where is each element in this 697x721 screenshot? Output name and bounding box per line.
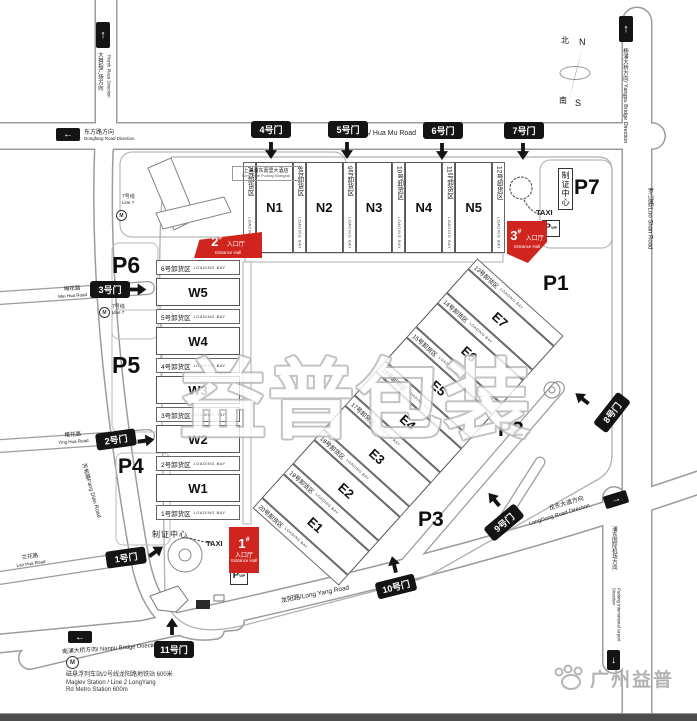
loading-bay-text: LOADING BAY (397, 217, 401, 249)
loading-bay-text: LOADING BAY (194, 462, 226, 466)
pudong-airport-direction-cn: 浦东国际机场方向 (610, 526, 617, 586)
mei-hua-road-label: 梅花路 Mei Hua Road (58, 285, 88, 299)
hall-w3: W3 (156, 376, 240, 404)
loading-bay-12: 12号卸货区 LOADING BAY (492, 162, 505, 253)
bay-5-label: 5号卸货区 (161, 312, 191, 322)
loading-bay-11: 11号卸货区 LOADING BAY (442, 162, 455, 253)
west-halls-block: 6号卸货区 LOADING BAY W5 5号卸货区 LOADING BAY W… (156, 260, 240, 523)
hall-n4: N4 (405, 162, 442, 253)
station-info-en2: Rd Metro Station 600m (66, 687, 173, 695)
hall-w1-label: W1 (188, 481, 208, 496)
hall-n3-label: N3 (366, 200, 383, 215)
station-info-cn: 磁悬浮列车站/2号线龙阳路地铁站 600米 (66, 672, 173, 680)
hall-w2-label: W2 (188, 432, 208, 447)
loading-bay-text: LOADING BAY (194, 315, 226, 319)
metro-icon-top: M (116, 210, 127, 221)
parking-p2: P2 (498, 418, 524, 442)
bay-3-label: 3号卸货区 (161, 410, 191, 420)
entrance-1-hash: # (246, 537, 250, 544)
gate-4: 4号门 (251, 121, 291, 138)
hall-w4-label: W4 (188, 334, 208, 349)
compass-north-en: N (579, 37, 586, 47)
loading-bay-text: LOADING BAY (447, 217, 451, 249)
hall-e7-label: E7 (489, 309, 511, 331)
hall-n5: N5 (455, 162, 492, 253)
dongfang-direction-en: Dongfang Road Direction (84, 136, 135, 141)
bay-6-label: 6号卸货区 (161, 263, 191, 273)
loading-bay-text: LOADING BAY (297, 217, 301, 249)
taxi-label-north: TAXI (536, 208, 553, 217)
compass-north-cn: 北 (561, 35, 569, 46)
yangpu-arrow-up: ↑ (619, 16, 633, 42)
entrance-2-en: Entrance Hall (215, 251, 241, 256)
pudong-airport-direction-en: Pudong International Airport Direction (611, 588, 622, 648)
vip-letter: VIP (239, 574, 245, 579)
loading-bay-1: 1号卸货区 LOADING BAY (156, 505, 240, 520)
line7-en-2: Line 7 (112, 310, 125, 316)
hall-n3: N3 (356, 162, 393, 253)
entrance-hall-1: 1# 入口厅 Entrance Hall (229, 527, 259, 573)
hall-e1-label: E1 (305, 514, 327, 536)
parking-p6: P6 (112, 252, 140, 279)
parking-p5: P5 (112, 352, 140, 379)
line7-en: Line 7 (122, 200, 135, 206)
bay-4-label: 4号卸货区 (161, 361, 191, 371)
kerry-hotel-en: Kerry Hotel Pudong Shanghai (235, 174, 297, 178)
loading-bay-4: 4号卸货区 LOADING BAY (156, 358, 240, 373)
hall-n1-label: N1 (266, 200, 283, 215)
parking-p3: P3 (418, 508, 444, 532)
bottom-bar (0, 713, 697, 721)
thumb-plaza-arrow-up: ↑ (96, 22, 110, 48)
loading-bay-text: LOADING BAY (194, 364, 226, 368)
yangpu-bridge-direction: 杨浦大桥方向/ Yangpu Bridge Direction (621, 48, 628, 183)
hall-w5-label: W5 (188, 285, 208, 300)
parking-p1: P1 (543, 272, 569, 296)
hall-e3-label: E3 (366, 445, 388, 467)
station-info-en1: Maglev Station / Line 2 LongYang (66, 680, 173, 688)
dongfang-direction-cn: 东方路方向 (84, 127, 114, 136)
bay-2-label: 2号卸货区 (161, 459, 191, 469)
loading-bay-6: 6号卸货区 LOADING BAY (156, 260, 240, 275)
hall-w5: W5 (156, 278, 240, 306)
thumb-plaza-direction-en: Thumb Plaza Direction (106, 54, 111, 134)
bay-9-label: 9号卸货区 (345, 166, 352, 196)
entrance-2-cn: 入口厅 (227, 242, 245, 248)
entrance-3-cn: 入口厅 (526, 236, 544, 242)
loading-bay-9: 9号卸货区 LOADING BAY (343, 162, 356, 253)
cert-center-p7: 制证中心 (558, 168, 573, 210)
taxi-label-south: TAXI (206, 539, 223, 548)
parking-p7: P7 (574, 176, 600, 200)
road-network (0, 0, 697, 721)
gate-5: 5号门 (328, 121, 368, 138)
brand-logo-text: 广州益普 (590, 665, 674, 692)
hall-e4-label: E4 (397, 411, 419, 433)
loading-bay-10: 10号卸货区 LOADING BAY (392, 162, 405, 253)
hall-n2: N2 (306, 162, 343, 253)
metro-icon-gate3: M (99, 307, 110, 318)
luo-shan-road-label: 罗山路/Luo Shan Road (645, 188, 653, 263)
hall-e6-label: E6 (459, 343, 481, 365)
gate-11: 11号门 (154, 641, 194, 658)
entrance-1-en: Entrance Hall (231, 559, 257, 564)
cert-center-gate1: 制证中心 (152, 529, 188, 540)
entrance-3-hash: # (517, 229, 521, 236)
gate-3: 3号门 (90, 281, 130, 298)
line7-label-top: 7号线 Line 7 (122, 194, 135, 206)
hall-n4-label: N4 (416, 200, 433, 215)
parking-p4: P4 (118, 455, 144, 479)
loading-bay-5: 5号卸货区 LOADING BAY (156, 309, 240, 324)
expo-map: 益普包装 北 N 南 S ↑ 大拇指广场方向 Thumb Plaza Direc… (0, 0, 697, 721)
hall-e5-label: E5 (428, 377, 450, 399)
bay-12-label: 12号卸货区 (495, 166, 502, 199)
line7-label-gate3: 7号线 Line 7 (112, 304, 125, 316)
compass-south-en: S (575, 98, 581, 108)
ying-hua-road-label: 樱花路 Ying Hua Road (58, 431, 89, 446)
entrance-3-en: Entrance Hall (514, 245, 540, 250)
entrance-1-num: 1 (238, 536, 245, 551)
kerry-hotel-label: 上海浦东嘉里大酒店 Kerry Hotel Pudong Shanghai (232, 166, 300, 181)
bay-10-label: 10号卸货区 (395, 166, 402, 199)
metro-icon-bottom: M (66, 656, 79, 669)
loading-bay-text: LOADING BAY (194, 266, 226, 270)
paw-icon (552, 664, 586, 692)
gate-6: 6号门 (423, 122, 463, 139)
hall-n5-label: N5 (465, 200, 482, 215)
hall-w3-label: W3 (188, 383, 208, 398)
bay-1-label: 1号卸货区 (161, 508, 191, 518)
gate-7: 7号门 (504, 122, 544, 139)
loading-bay-2: 2号卸货区 LOADING BAY (156, 456, 240, 471)
loading-bay-text: LOADING BAY (496, 217, 500, 249)
station-info: 磁悬浮列车站/2号线龙阳路地铁站 600米 Maglev Station / L… (66, 672, 173, 695)
hall-n2-label: N2 (316, 200, 333, 215)
hall-w1: W1 (156, 474, 240, 502)
compass-south-cn: 南 (559, 95, 567, 106)
loading-bay-text: LOADING BAY (194, 511, 226, 515)
dongfang-arrow-left: ← (56, 128, 80, 141)
loading-bay-3: 3号卸货区 LOADING BAY (156, 407, 240, 422)
hall-e2-label: E2 (336, 479, 358, 501)
hall-w4: W4 (156, 327, 240, 355)
thumb-plaza-direction-cn: 大拇指广场方向 (96, 52, 103, 132)
brand-logo: 广州益普 (552, 664, 674, 692)
loading-bay-text: LOADING BAY (194, 413, 226, 417)
nanpu-arrow-left: ← (68, 631, 92, 643)
hall-w2: W2 (156, 425, 240, 453)
bay-11-label: 11号卸货区 (445, 166, 452, 199)
loading-bay-text: LOADING BAY (347, 217, 351, 249)
vip-letter: VIP (551, 226, 557, 231)
